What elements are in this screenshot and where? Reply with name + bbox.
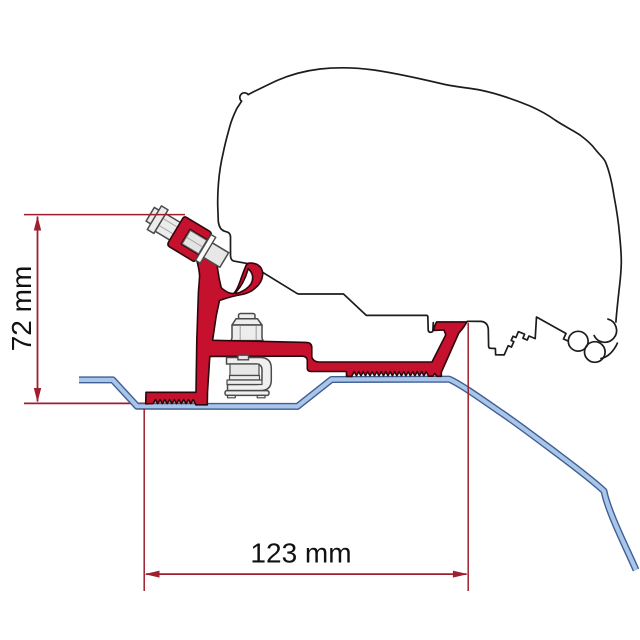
svg-text:72 mm: 72 mm [6,266,37,352]
svg-text:123 mm: 123 mm [250,538,351,569]
